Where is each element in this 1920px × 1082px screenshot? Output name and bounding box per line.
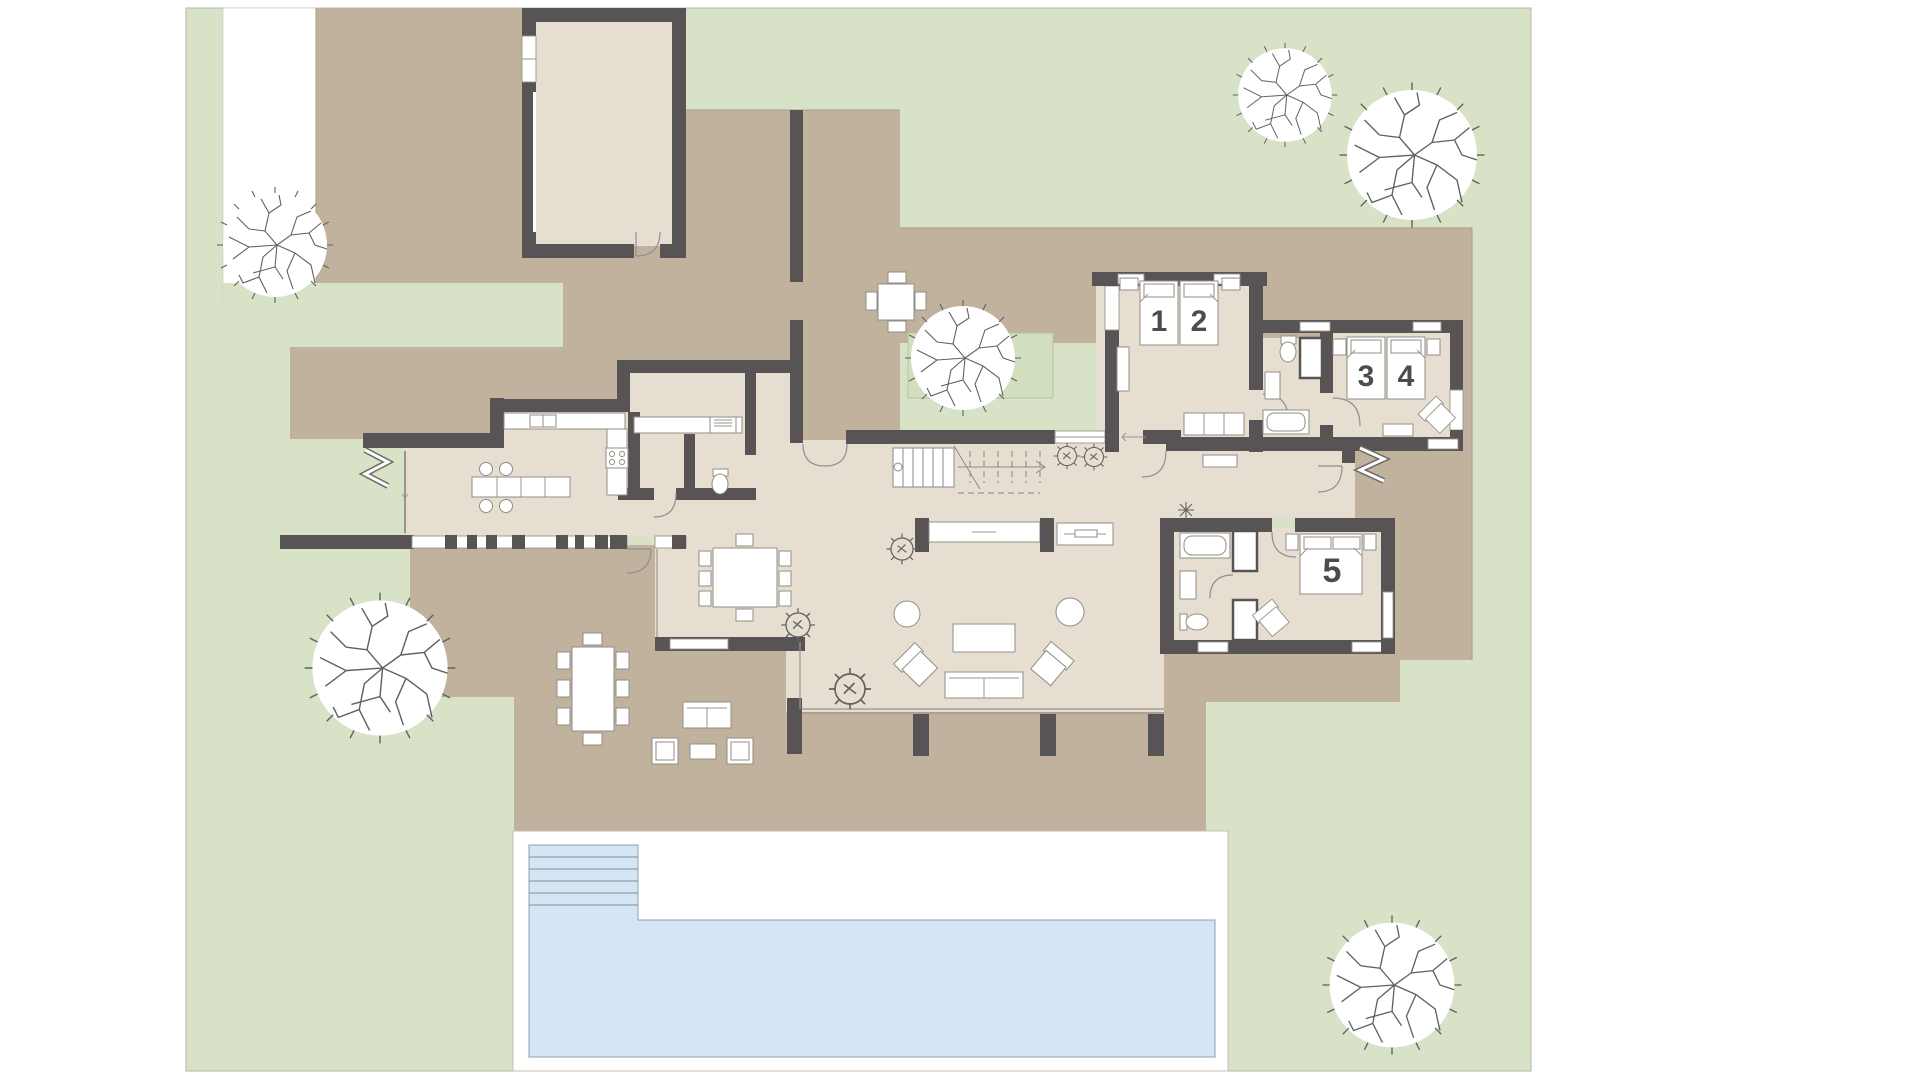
closet bbox=[1233, 600, 1257, 640]
outdoor-coffee-table bbox=[690, 744, 716, 759]
stove bbox=[606, 448, 628, 468]
side-table bbox=[1056, 598, 1084, 626]
plant-icon bbox=[1081, 444, 1108, 471]
star-symbol bbox=[1178, 502, 1194, 518]
floor-plan-page: 1 2 3 4 bbox=[0, 0, 1920, 1077]
toilet bbox=[1280, 336, 1296, 362]
bed-1: 1 bbox=[1140, 281, 1178, 345]
bar-stool bbox=[500, 463, 513, 476]
bathtub bbox=[1180, 533, 1230, 558]
kitchen-counter bbox=[504, 413, 625, 429]
bed-3-label: 3 bbox=[1358, 360, 1375, 393]
dining-table bbox=[713, 548, 777, 607]
bench bbox=[1203, 455, 1237, 467]
tree-icon bbox=[217, 187, 333, 303]
tree-icon bbox=[905, 300, 1021, 416]
nightstand bbox=[1222, 278, 1240, 290]
bar-stool bbox=[500, 500, 513, 513]
washing-machine bbox=[710, 417, 736, 433]
kitchen-sink bbox=[530, 415, 543, 427]
outdoor-sofa bbox=[683, 702, 731, 728]
bed-5: 5 bbox=[1300, 534, 1362, 594]
dresser bbox=[1383, 424, 1413, 436]
nightstand bbox=[1364, 534, 1376, 550]
toilet bbox=[1180, 614, 1208, 630]
column bbox=[913, 714, 929, 756]
shower bbox=[1233, 531, 1257, 571]
bed-4-label: 4 bbox=[1398, 360, 1415, 393]
plant-icon bbox=[781, 608, 815, 642]
bar-stool bbox=[480, 500, 493, 513]
outdoor-table bbox=[572, 647, 614, 731]
column bbox=[1148, 714, 1164, 756]
bed-2-label: 2 bbox=[1191, 305, 1208, 338]
closet bbox=[1117, 347, 1129, 391]
bed-4: 4 bbox=[1387, 337, 1425, 399]
tree-icon bbox=[1340, 83, 1485, 228]
plant-icon bbox=[887, 534, 918, 565]
bed-3: 3 bbox=[1347, 337, 1385, 399]
wardrobe bbox=[1184, 413, 1244, 435]
plant-icon bbox=[1054, 443, 1081, 470]
garage-floor bbox=[536, 22, 672, 246]
wc-toilet bbox=[712, 469, 728, 494]
pool bbox=[513, 831, 1228, 1071]
nightstand bbox=[1120, 278, 1138, 290]
bed-2: 2 bbox=[1180, 281, 1218, 345]
bar-stool bbox=[480, 463, 493, 476]
tree-icon bbox=[305, 593, 456, 744]
plant-icon bbox=[829, 668, 871, 710]
bed-1-label: 1 bbox=[1151, 305, 1168, 338]
bed-5-label: 5 bbox=[1323, 552, 1342, 590]
bathtub bbox=[1263, 410, 1309, 434]
side-table bbox=[894, 601, 920, 627]
shower bbox=[1300, 338, 1322, 378]
sink bbox=[1180, 571, 1196, 599]
garage-window bbox=[533, 92, 536, 232]
tree-icon bbox=[1233, 43, 1337, 147]
sofa bbox=[945, 672, 1023, 698]
nightstand bbox=[1286, 534, 1298, 550]
nightstand bbox=[1333, 339, 1346, 355]
nightstand bbox=[1427, 339, 1440, 355]
coffee-table bbox=[953, 624, 1015, 652]
floor-plan-drawing: 1 2 3 4 bbox=[0, 0, 1920, 1077]
tree-icon bbox=[1322, 915, 1461, 1054]
column bbox=[1040, 714, 1056, 756]
sink bbox=[1265, 372, 1280, 399]
patio-table bbox=[878, 284, 914, 320]
